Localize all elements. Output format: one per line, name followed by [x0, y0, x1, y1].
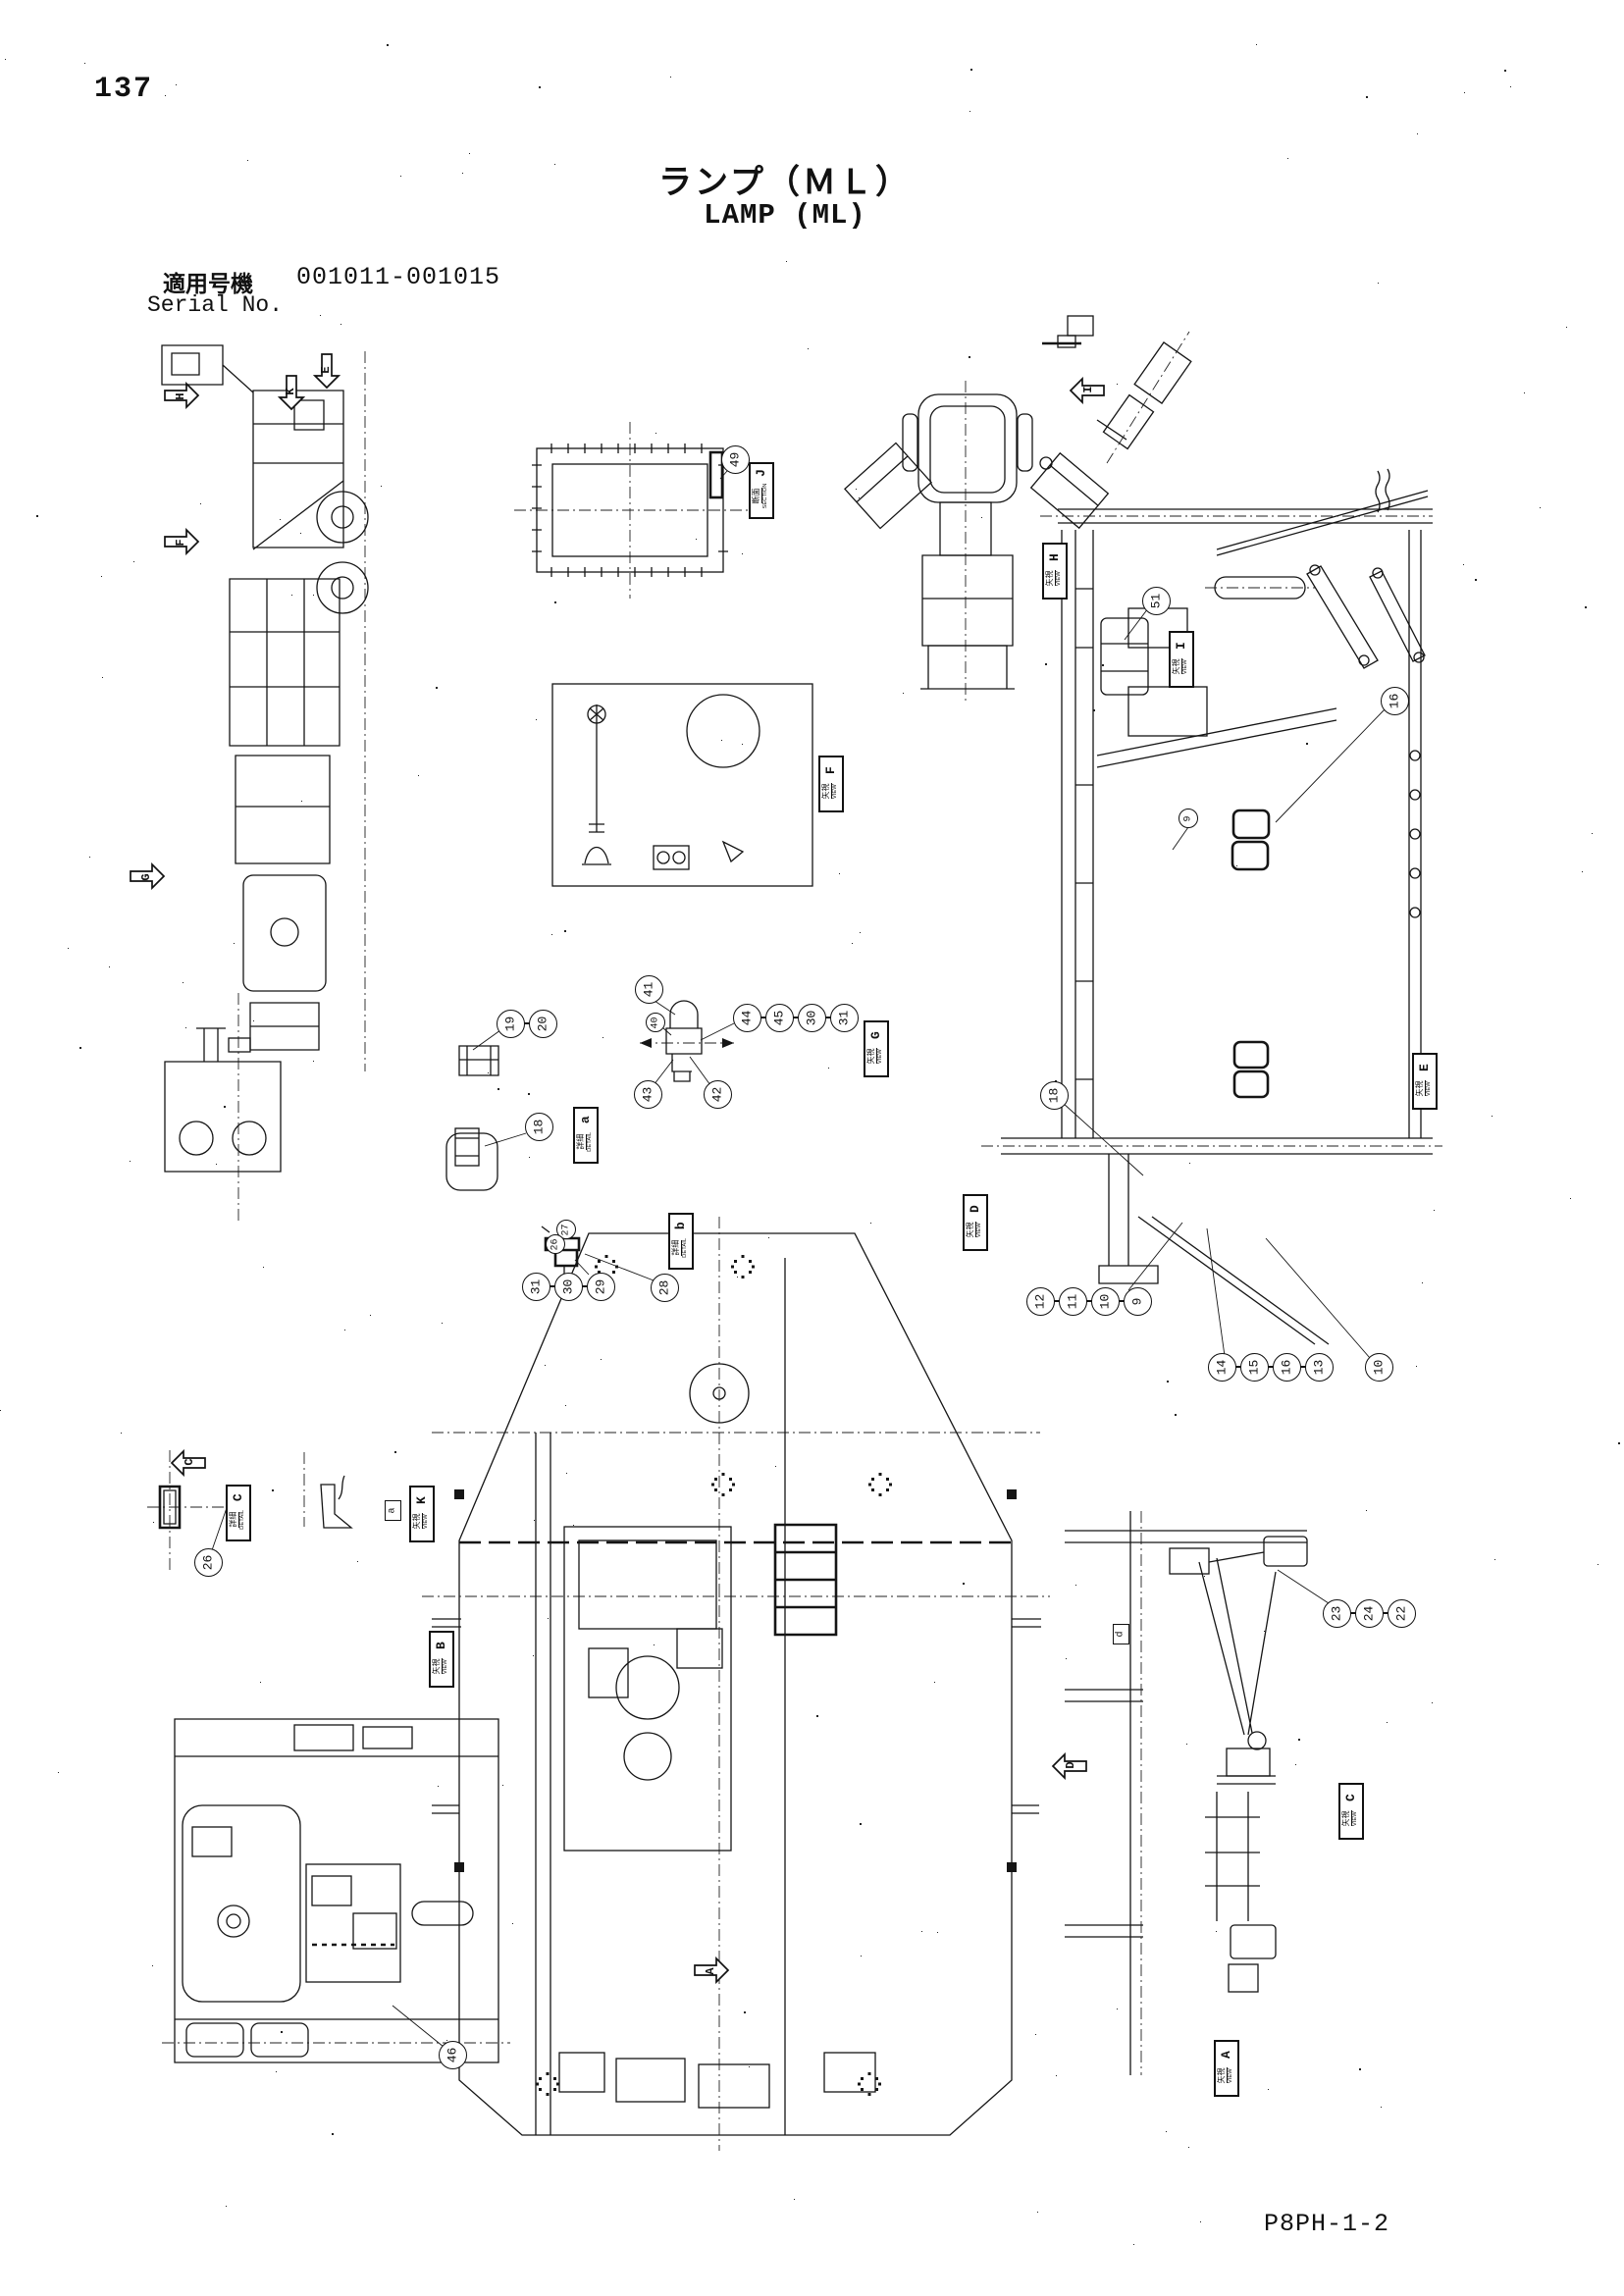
- view-label-detail: 詳細DETAILC: [226, 1485, 251, 1541]
- view-label-detail: 詳細DETAILb: [668, 1213, 694, 1270]
- part-callout: 26: [546, 1234, 565, 1254]
- part-callout: 10: [1365, 1353, 1393, 1382]
- view-arrow: C: [170, 1449, 207, 1477]
- part-callout: 49: [721, 445, 750, 474]
- view-label-view: 矢視VIEWG: [864, 1020, 889, 1077]
- part-callout: 31: [522, 1273, 550, 1301]
- section-marker: a: [385, 1500, 401, 1521]
- part-callout: 10: [1091, 1287, 1120, 1316]
- view-arrow: H: [163, 382, 200, 409]
- part-callout: 42: [704, 1080, 732, 1109]
- view-label-view: 矢視VIEWB: [429, 1631, 454, 1688]
- part-callout: 41: [635, 975, 663, 1004]
- view-arrow: A: [693, 1957, 730, 1984]
- part-callout: 30: [554, 1273, 583, 1301]
- part-callout: 45: [765, 1004, 794, 1032]
- part-callout: 43: [634, 1080, 662, 1109]
- view-label-view: 矢視VIEWA: [1214, 2040, 1239, 2097]
- view-arrow: K: [278, 374, 305, 411]
- view-label-detail: 詳細DETAILa: [573, 1107, 599, 1164]
- view-arrow: F: [163, 528, 200, 555]
- part-callout: 22: [1388, 1599, 1416, 1628]
- part-callout: 9: [1124, 1287, 1152, 1316]
- part-callout: 16: [1381, 687, 1409, 715]
- view-label-view: 矢視VIEWI: [1169, 631, 1194, 688]
- view-arrow: G: [129, 862, 166, 890]
- view-label-section: 断面SECTIONJ: [749, 462, 774, 519]
- view-label-view: 矢視VIEWD: [963, 1194, 988, 1251]
- view-arrow: D: [1051, 1752, 1088, 1780]
- part-callout: 16: [1273, 1353, 1301, 1382]
- section-marker: d: [1113, 1624, 1129, 1644]
- part-callout: 13: [1305, 1353, 1334, 1382]
- catalog-page: 137 ランプ（ＭＬ） LAMP (ML) 適用号機 001011-001015…: [0, 0, 1624, 2296]
- part-callout: 24: [1355, 1599, 1384, 1628]
- part-callout: 18: [525, 1113, 553, 1141]
- part-callout: 28: [651, 1274, 679, 1302]
- part-callout: 40: [646, 1013, 665, 1032]
- part-callout: 18: [1040, 1081, 1069, 1110]
- view-label-view: 矢視VIEWH: [1042, 543, 1068, 600]
- part-callout: 30: [798, 1004, 826, 1032]
- part-callout: 14: [1208, 1353, 1236, 1382]
- part-callout: 23: [1323, 1599, 1351, 1628]
- part-callout: 29: [587, 1273, 615, 1301]
- view-arrow: E: [313, 352, 341, 390]
- part-callout: 9: [1179, 809, 1198, 828]
- part-callout: 51: [1142, 587, 1171, 615]
- part-callout: 11: [1059, 1287, 1087, 1316]
- view-label-view: 矢視VIEWF: [818, 756, 844, 812]
- view-label-view: 矢視VIEWE: [1412, 1053, 1438, 1110]
- part-callout: 15: [1240, 1353, 1269, 1382]
- annotation-overlay: 4951169414043421827262818102646192044453…: [0, 0, 1624, 2296]
- part-callout: 44: [733, 1004, 761, 1032]
- part-callout: 31: [830, 1004, 859, 1032]
- view-arrow: I: [1069, 377, 1106, 404]
- part-callout: 19: [497, 1010, 525, 1038]
- view-label-view: 矢視VIEWC: [1338, 1783, 1364, 1840]
- part-callout: 20: [529, 1010, 557, 1038]
- part-callout: 12: [1026, 1287, 1055, 1316]
- part-callout: 26: [194, 1548, 223, 1577]
- view-label-view: 矢視VIEWK: [409, 1486, 435, 1542]
- part-callout: 46: [439, 2041, 467, 2069]
